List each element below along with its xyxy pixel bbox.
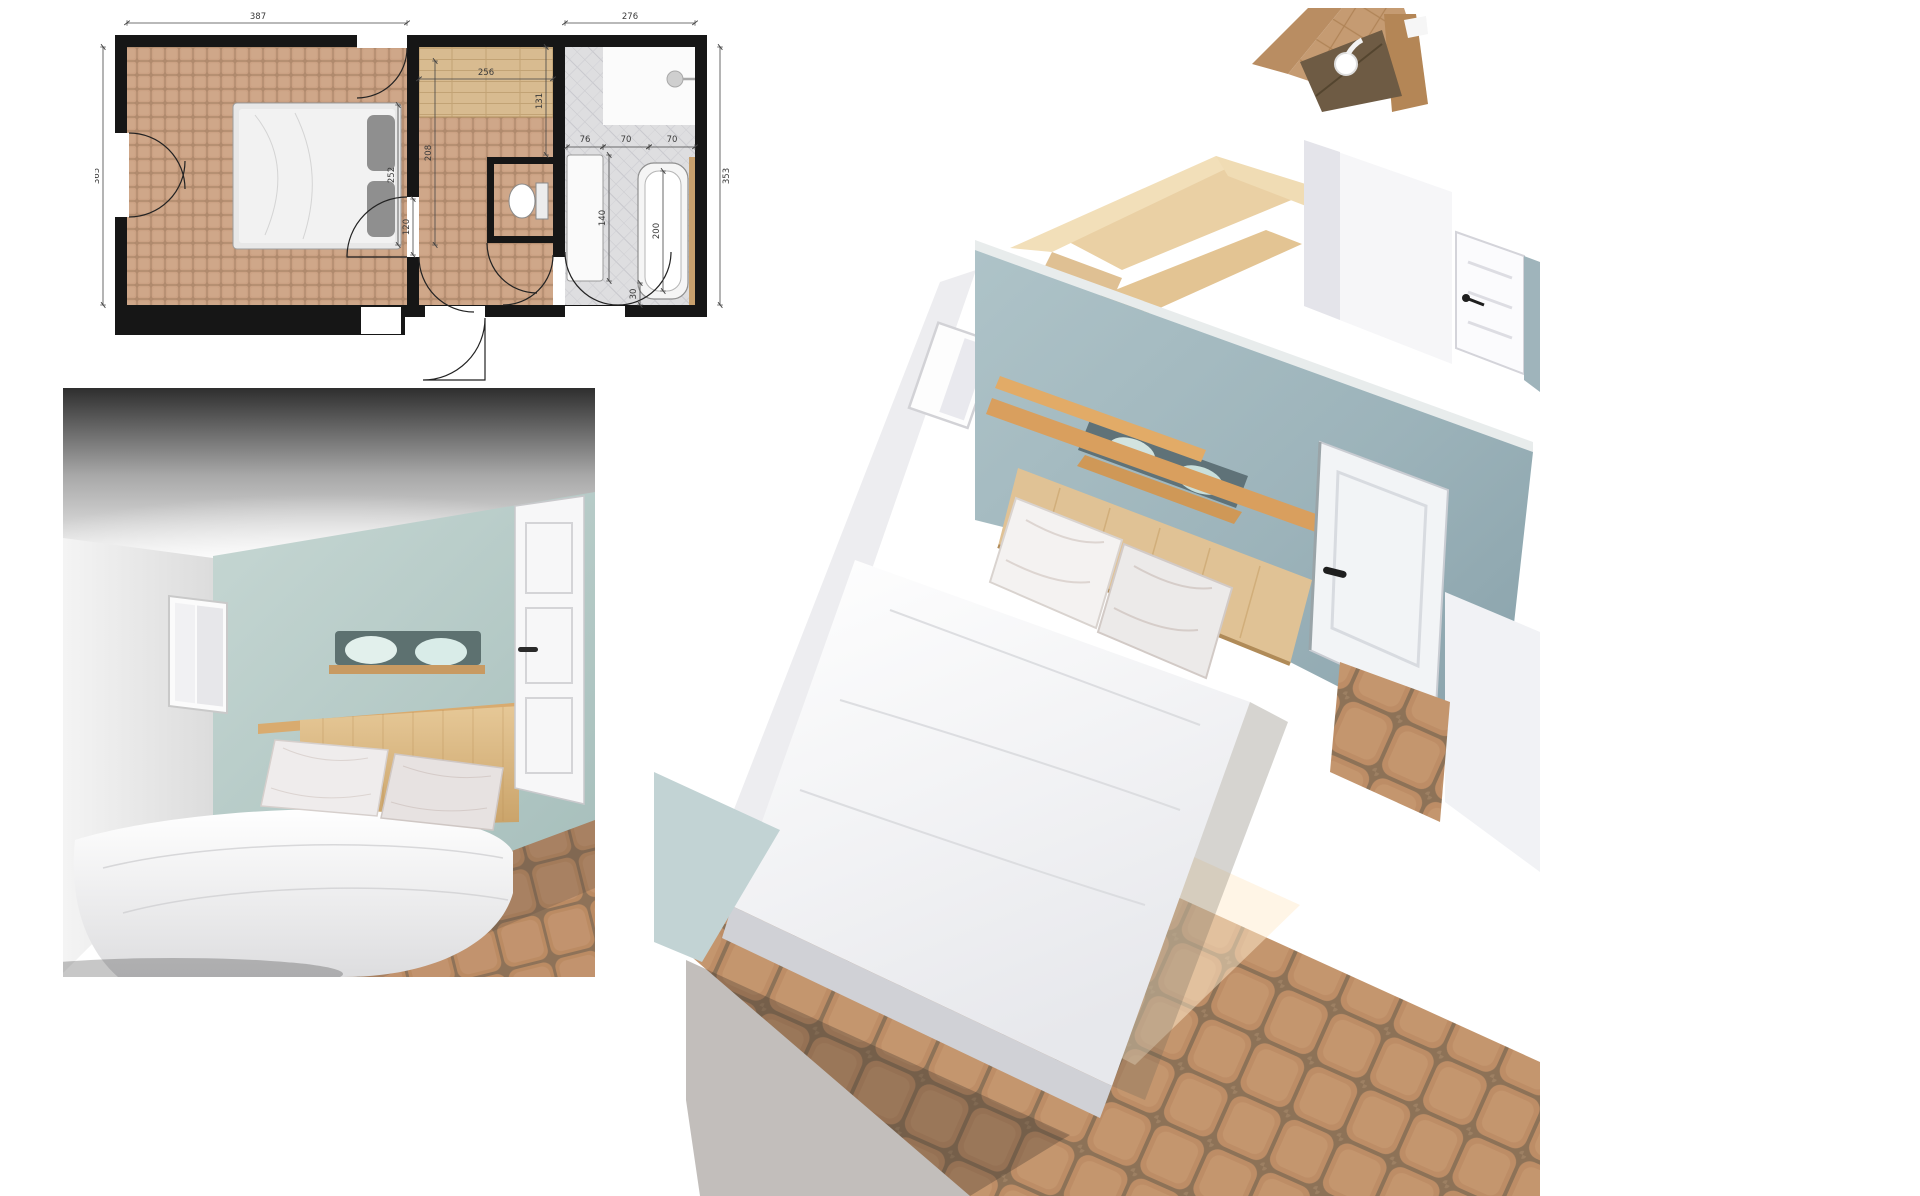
wall-niche-lights <box>329 631 485 674</box>
plan-wc-room <box>487 157 553 243</box>
plan-pillow <box>367 115 395 171</box>
right-wall-band <box>1445 592 1540 872</box>
dim-dressing-width: 256 <box>478 68 494 78</box>
presentation-canvas: 387 276 365 353 256 131 208 252 120 76 7… <box>0 0 1920 1196</box>
bedroom-aerial-render <box>640 0 1540 1196</box>
shower-stall <box>1252 8 1428 112</box>
pillow-left <box>261 740 388 816</box>
niche-wood-shelf <box>329 665 485 674</box>
door-handle <box>518 647 538 652</box>
hallway-wall-shadow <box>1304 140 1340 320</box>
plan-bed <box>233 103 401 249</box>
dim-shower-width: 70 <box>621 135 632 145</box>
bedroom-door <box>515 496 584 804</box>
hallway-blue-sliver <box>1524 256 1540 392</box>
hallway <box>1304 140 1540 392</box>
dim-closet-run: 208 <box>424 145 434 161</box>
dim-dressing-depth: 131 <box>535 93 545 109</box>
dim-tub-margin: 30 <box>629 289 639 300</box>
dim-bathroom-width: 276 <box>622 12 638 22</box>
dim-vanity-run: 140 <box>598 210 608 226</box>
dim-bedroom-width: 387 <box>250 12 266 22</box>
bedroom-perspective-render <box>63 388 595 977</box>
dim-door-clear: 120 <box>402 219 412 235</box>
toilet-icon <box>509 183 548 219</box>
door-swing-arc <box>423 318 485 380</box>
pillow-right <box>381 754 503 830</box>
dim-bed-length: 252 <box>387 167 397 183</box>
dim-left-height: 365 <box>95 168 102 184</box>
window-niche <box>169 596 227 713</box>
hallway-door <box>1456 232 1524 374</box>
plan-dressing-wardrobe <box>419 47 553 117</box>
dim-vanity-width: 76 <box>580 135 591 145</box>
